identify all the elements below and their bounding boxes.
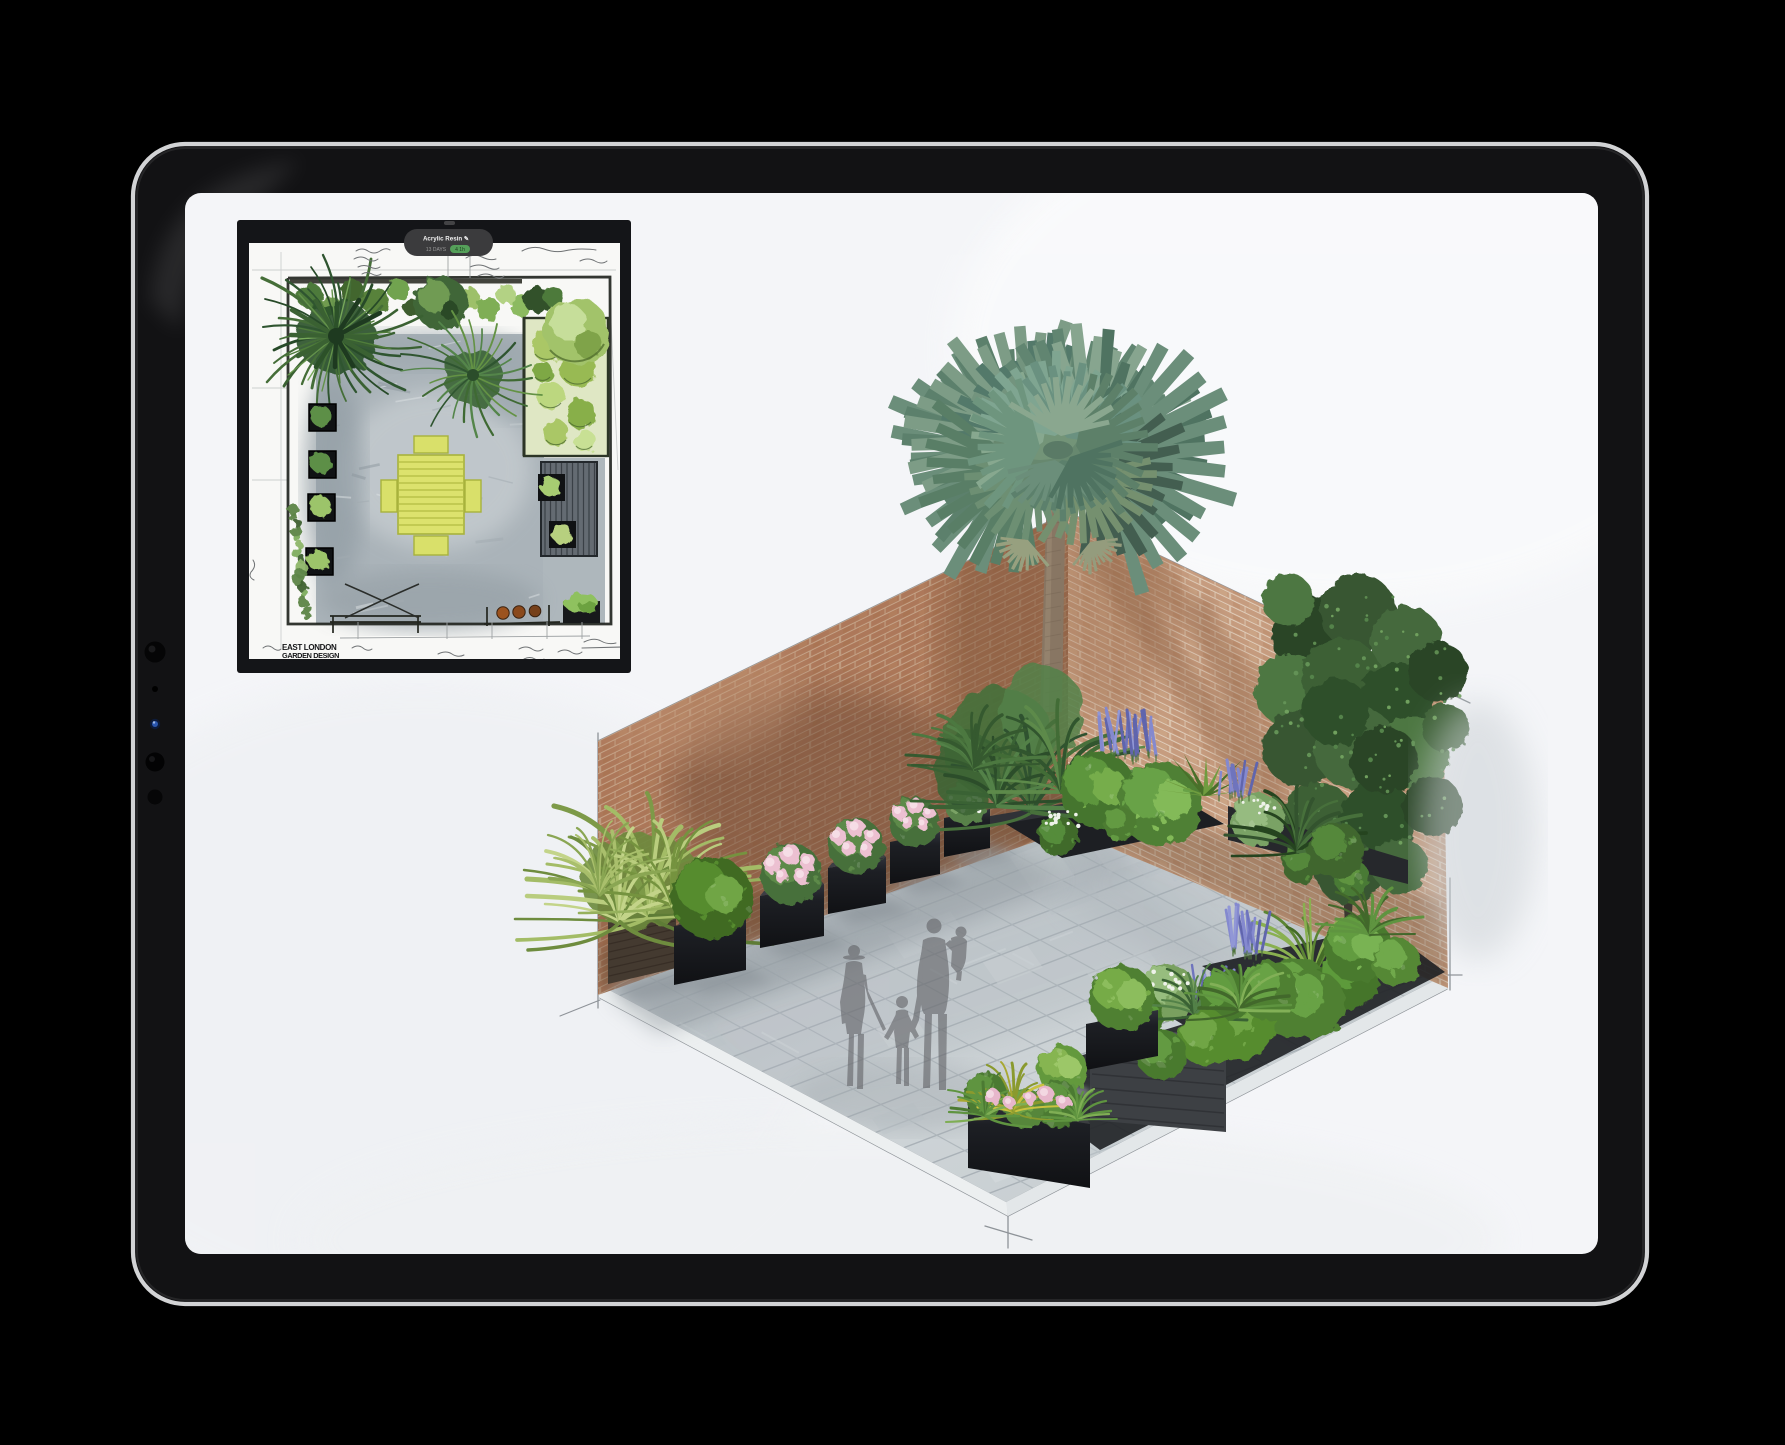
svg-text:4 1h: 4 1h bbox=[455, 247, 465, 253]
svg-text:GARDEN DESIGN: GARDEN DESIGN bbox=[282, 651, 339, 660]
svg-text:13 DAYS: 13 DAYS bbox=[426, 247, 447, 253]
svg-text:Acrylic Resin ✎: Acrylic Resin ✎ bbox=[423, 236, 469, 243]
